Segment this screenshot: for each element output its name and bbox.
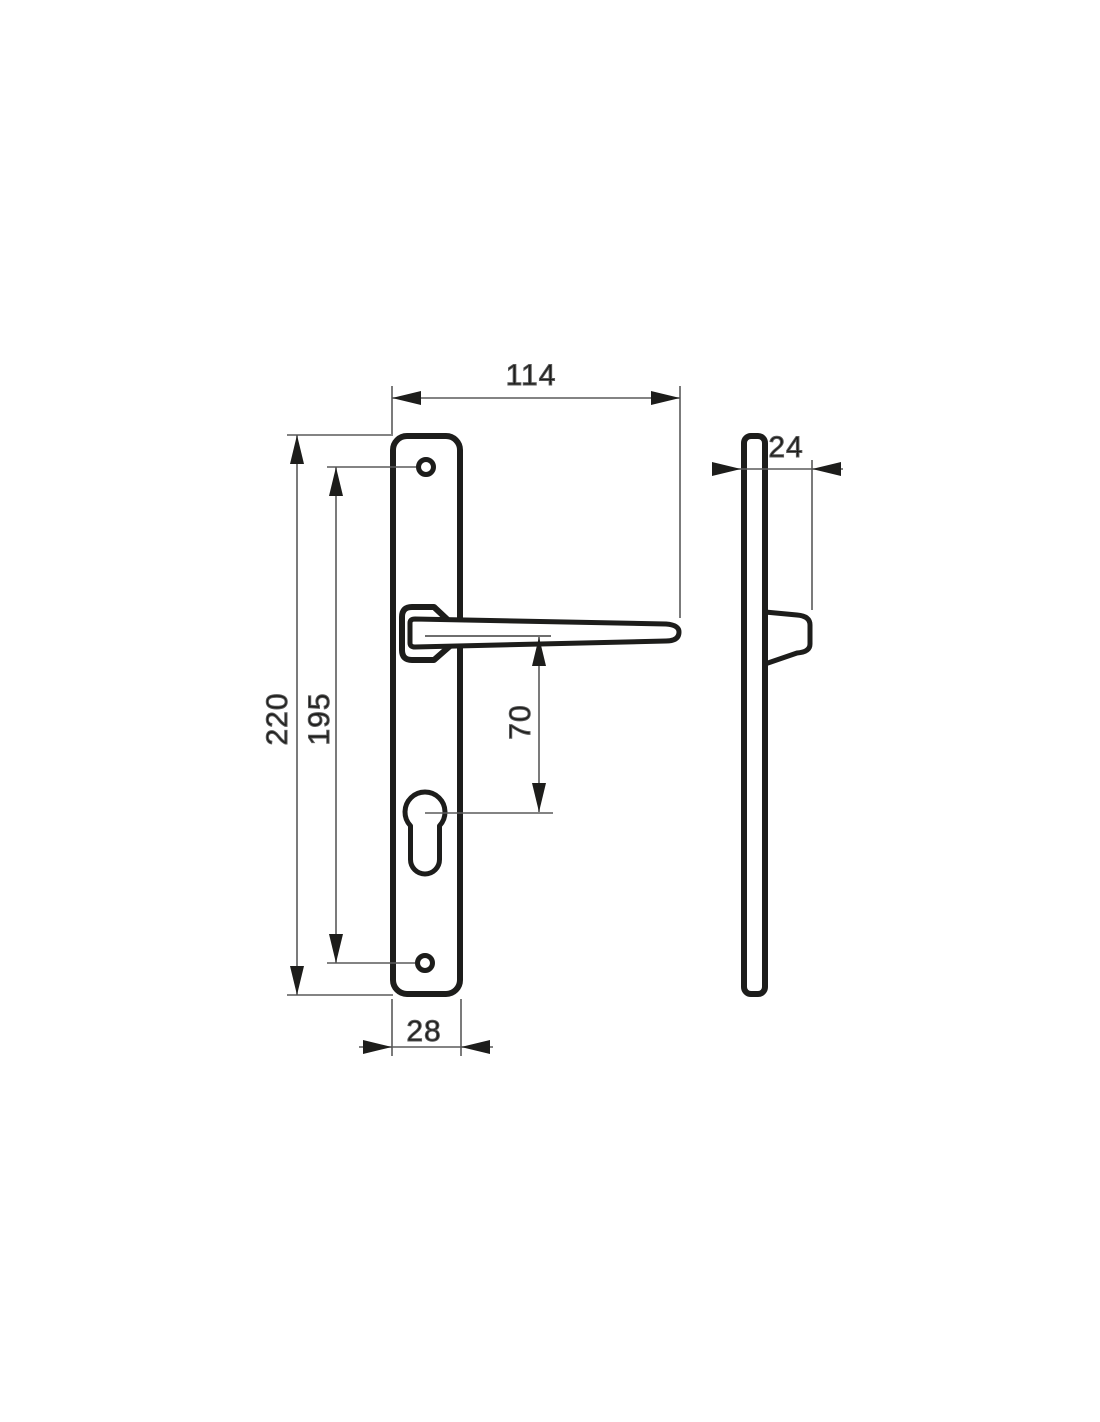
dim-plate-width: 28 (359, 999, 493, 1056)
technical-drawing-page: 114 220 195 (0, 0, 1100, 1422)
arrow-up-icon (329, 467, 343, 496)
dim-hole-spacing-label: 195 (303, 692, 336, 745)
side-view (744, 436, 810, 994)
top-screw-hole (419, 460, 434, 475)
side-handle-projection (765, 612, 810, 664)
euro-cylinder-keyhole (405, 792, 445, 874)
arrow-left-icon (392, 391, 421, 405)
arrow-down-icon (532, 783, 546, 812)
side-plate (744, 436, 765, 994)
handle-lever (410, 619, 679, 647)
arrow-up-icon (290, 435, 304, 464)
dim-overall-height-label: 220 (261, 692, 294, 745)
arrow-right-icon (651, 391, 680, 405)
arrow-right-icon (712, 462, 741, 476)
dim-plate-width-label: 28 (406, 1015, 441, 1048)
arrow-down-icon (329, 934, 343, 963)
door-handle-technical-drawing: 114 220 195 (0, 0, 1100, 1422)
dim-handle-to-cylinder-label: 70 (504, 704, 537, 739)
arrow-right-icon (363, 1040, 392, 1054)
arrow-left-icon (812, 462, 841, 476)
front-plate (393, 436, 460, 994)
dim-projection-depth-label: 24 (768, 431, 803, 464)
dim-width-top-label: 114 (506, 359, 557, 392)
arrow-left-icon (461, 1040, 490, 1054)
dim-projection-depth: 24 (712, 431, 843, 610)
bottom-screw-hole (418, 956, 433, 971)
arrow-down-icon (290, 966, 304, 995)
